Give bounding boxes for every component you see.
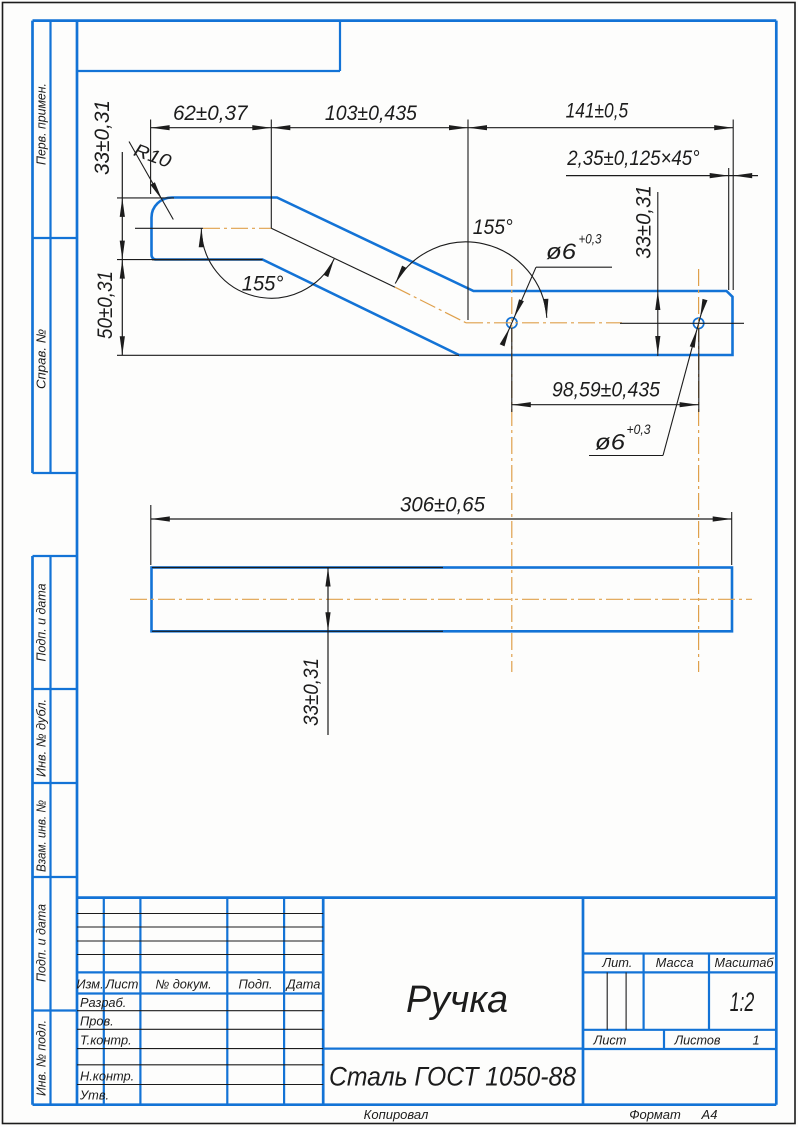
svg-text:33±0,31: 33±0,31 xyxy=(632,185,656,259)
svg-text:Масса: Масса xyxy=(656,955,694,970)
svg-text:33±0,31: 33±0,31 xyxy=(90,100,114,175)
svg-text:141±0,5: 141±0,5 xyxy=(566,99,629,123)
svg-text:Подп. и дата: Подп. и дата xyxy=(34,904,49,982)
svg-text:Т.контр.: Т.контр. xyxy=(80,1033,132,1048)
svg-text:1:2: 1:2 xyxy=(730,987,755,1017)
svg-text:+0,3: +0,3 xyxy=(579,231,602,247)
svg-text:№ докум.: № докум. xyxy=(155,977,211,992)
svg-text:Сталь ГОСТ 1050-88: Сталь ГОСТ 1050-88 xyxy=(329,1062,576,1092)
svg-text:Листов: Листов xyxy=(674,1032,721,1047)
svg-text:Инв. № дубл.: Инв. № дубл. xyxy=(34,699,49,777)
svg-text:Формат: Формат xyxy=(629,1107,681,1122)
svg-text:ø6: ø6 xyxy=(595,430,626,455)
svg-text:Перв. примен.: Перв. примен. xyxy=(34,83,49,165)
svg-text:2,35±0,125×45°: 2,35±0,125×45° xyxy=(566,146,700,170)
svg-text:Масштаб: Масштаб xyxy=(715,955,775,970)
svg-text:Подп.: Подп. xyxy=(238,977,272,992)
svg-text:306±0,65: 306±0,65 xyxy=(400,493,486,517)
svg-text:155°: 155° xyxy=(242,272,284,296)
svg-text:Лист: Лист xyxy=(593,1032,627,1047)
svg-text:98,59±0,435: 98,59±0,435 xyxy=(552,378,661,402)
svg-text:Лит.: Лит. xyxy=(601,955,632,970)
svg-text:155°: 155° xyxy=(473,215,513,239)
svg-text:Пров.: Пров. xyxy=(80,1014,114,1029)
svg-text:Н.контр.: Н.контр. xyxy=(80,1069,134,1084)
svg-text:103±0,435: 103±0,435 xyxy=(325,101,418,125)
svg-text:Утв.: Утв. xyxy=(79,1088,109,1103)
svg-text:Справ. №: Справ. № xyxy=(34,329,49,389)
svg-text:Взам. инв. №: Взам. инв. № xyxy=(34,800,49,872)
svg-text:Разраб.: Разраб. xyxy=(80,995,126,1010)
svg-text:Инв. № подл.: Инв. № подл. xyxy=(34,1020,49,1096)
svg-text:Дата: Дата xyxy=(285,977,321,992)
svg-text:Изм.: Изм. xyxy=(76,977,103,992)
svg-text:Лист: Лист xyxy=(105,977,139,992)
svg-text:Копировал: Копировал xyxy=(364,1107,429,1122)
svg-text:Ручка: Ручка xyxy=(406,979,508,1021)
svg-text:ø6: ø6 xyxy=(546,239,577,264)
svg-text:А4: А4 xyxy=(701,1107,718,1122)
svg-text:62±0,37: 62±0,37 xyxy=(173,101,248,125)
svg-text:Подп. и дата: Подп. и дата xyxy=(34,584,49,662)
svg-text:50±0,31: 50±0,31 xyxy=(93,271,117,339)
svg-text:33±0,31: 33±0,31 xyxy=(299,658,323,726)
svg-text:+0,3: +0,3 xyxy=(627,421,651,437)
svg-text:1: 1 xyxy=(752,1032,759,1047)
